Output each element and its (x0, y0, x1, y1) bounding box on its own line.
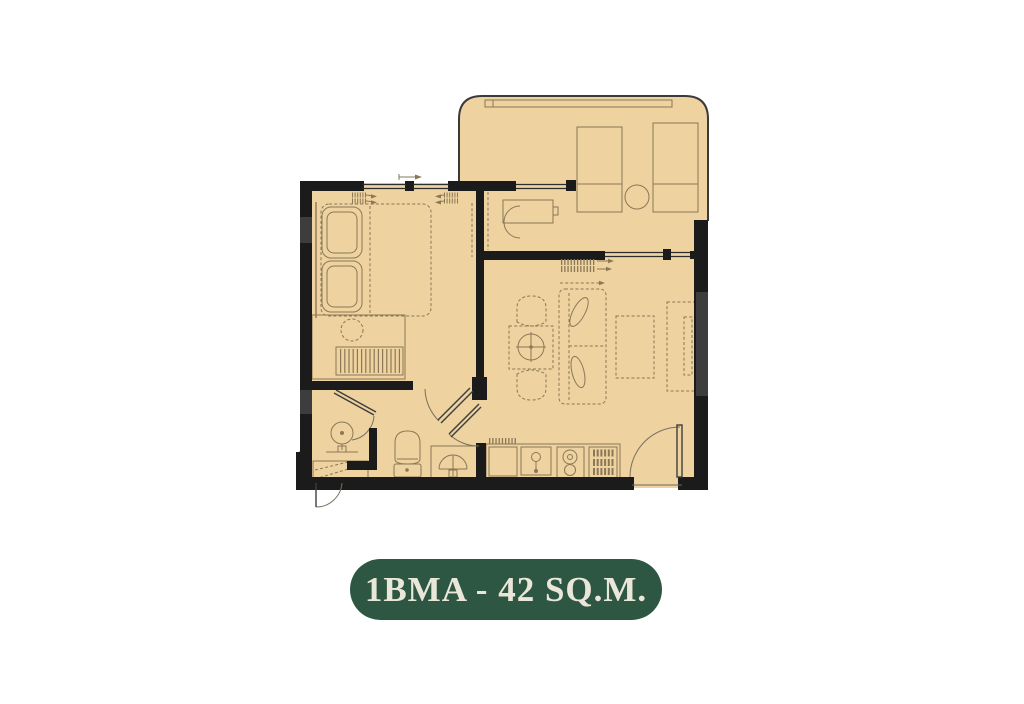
window-left-2 (300, 389, 312, 414)
unit-label-text: 1BMA - 42 SQ.M. (365, 570, 647, 610)
swing-direction-arrow (399, 174, 422, 180)
floor (302, 96, 708, 488)
window-right (696, 292, 708, 396)
window-left-1 (300, 217, 312, 243)
unit-label-pill: 1BMA - 42 SQ.M. (350, 559, 662, 620)
floor-plan-page: 1BMA - 42 SQ.M. (0, 0, 1024, 704)
